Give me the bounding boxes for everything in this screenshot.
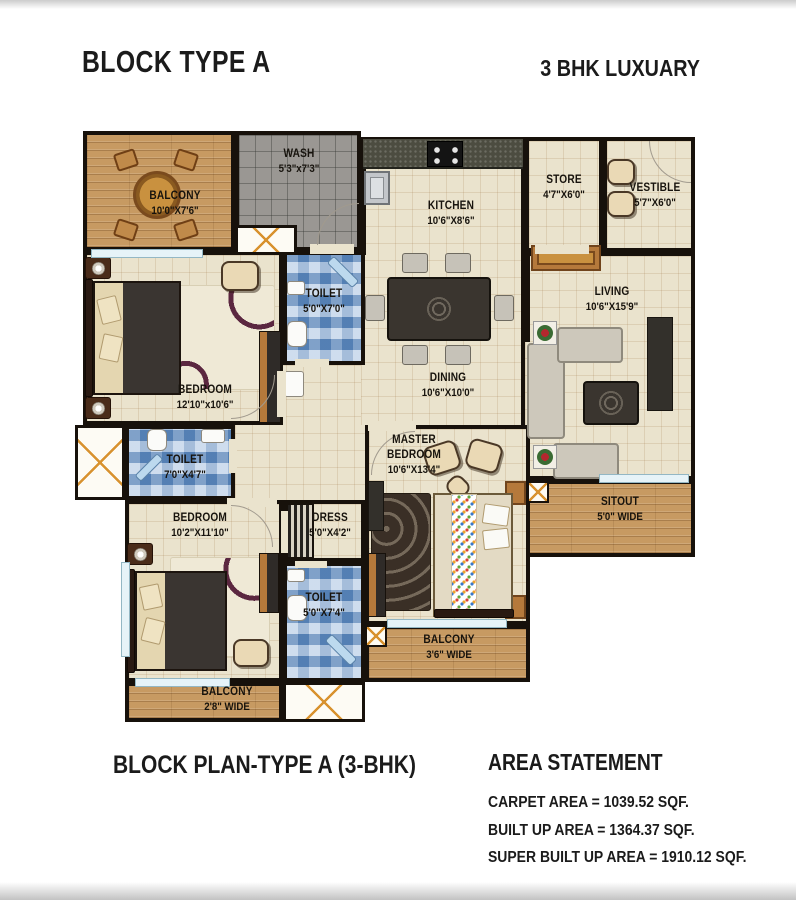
dining-table-icon [387, 277, 491, 341]
pillow [482, 503, 511, 526]
page-edge-shade-bottom [0, 882, 796, 900]
chair-icon [221, 261, 259, 291]
floor-plan: BALCONY 10'0"X7'6" WASH 5'3"x7'3" KITCHE… [75, 125, 700, 725]
wc-icon [147, 429, 167, 451]
builtup-area-line: BUILT UP AREA = 1364.37 SQF. [488, 817, 758, 845]
page-subtitle: 3 BHK LUXUARY [528, 55, 700, 82]
dresser-icon [368, 481, 384, 531]
tv-unit-icon [647, 317, 673, 411]
wall-living-left [523, 252, 530, 342]
door-opening [277, 371, 286, 417]
room-label-wash: WASH 5'3"x7'3" [257, 147, 341, 176]
chair-icon [233, 639, 269, 667]
room-label-dining: DINING 10'6"X10'0" [400, 371, 497, 400]
stove-icon [427, 141, 463, 167]
page-title: BLOCK TYPE A [82, 44, 271, 80]
carpet-area-line: CARPET AREA = 1039.52 SQF. [488, 789, 758, 817]
super-builtup-area-line: SUPER BUILT UP AREA = 1910.12 SQF. [488, 844, 758, 872]
dining-chair-icon [494, 295, 514, 321]
window [91, 249, 203, 258]
wardrobe-icon [259, 553, 279, 613]
area-statement-title: AREA STATEMENT [488, 749, 663, 776]
page-edge-shade-top [0, 0, 796, 9]
room-label-toilet-3: TOILET 5'0"X7'4" [288, 591, 360, 620]
bed-runner [451, 494, 477, 618]
nightstand-lamp-icon [127, 543, 153, 565]
duct-x-icon [235, 225, 297, 255]
washbasin-icon [201, 429, 225, 443]
sofa-icon [557, 327, 623, 363]
room-label-store: STORE 4'7"X6'0" [531, 173, 596, 202]
area-statement-lines: CARPET AREA = 1039.52 SQF. BUILT UP AREA… [488, 789, 788, 872]
room-label-balcony-28: BALCONY 2'8" WIDE [174, 685, 280, 714]
room-label-balcony-36: BALCONY 3'6" WIDE [394, 633, 503, 662]
duct-x-icon [527, 481, 549, 503]
dining-chair-icon [402, 253, 428, 273]
room-label-sitout: SITOUT 5'0" WIDE [576, 495, 664, 524]
wc-icon [287, 321, 307, 347]
door-opening [281, 511, 288, 553]
coffee-table-icon [583, 381, 639, 425]
dining-chair-icon [445, 253, 471, 273]
bed-headboard [434, 609, 514, 618]
pillow [99, 333, 124, 363]
room-label-vestible: VESTIBLE 5'7"X6'0" [616, 181, 693, 210]
dining-chair-icon [365, 295, 385, 321]
wardrobe-icon [368, 553, 386, 617]
room-label-living: LIVING 10'6"X15'9" [568, 285, 656, 314]
pillow [140, 617, 165, 645]
pillow [96, 295, 122, 325]
dining-chair-icon [402, 345, 428, 365]
washbasin-icon [284, 371, 304, 397]
room-label-bedroom-1: BEDROOM 12'10"x10'6" [152, 383, 258, 412]
plan-footer-title: BLOCK PLAN-TYPE A (3-BHK) [113, 751, 416, 780]
room-label-balcony-top-left: BALCONY 10'0"X7'6" [126, 189, 225, 218]
plant-icon [533, 445, 557, 469]
pillow [482, 528, 510, 551]
room-label-toilet-2: TOILET 7'0"X4'7" [141, 453, 229, 482]
room-label-kitchen: KITCHEN 10'6"X8'6" [407, 199, 495, 228]
door-opening [368, 421, 416, 431]
room-label-toilet-1: TOILET 5'0"X7'0" [286, 287, 362, 316]
door-opening [295, 561, 327, 568]
nightstand-lamp-icon [85, 397, 111, 419]
kitchen-sink-icon [364, 171, 390, 205]
bed-icon [135, 571, 227, 671]
door-opening [535, 245, 589, 254]
dining-chair-icon [445, 345, 471, 365]
bed-icon [93, 281, 181, 395]
door-opening [295, 359, 329, 367]
door-opening [310, 244, 354, 254]
bed-icon [433, 493, 513, 617]
door-opening [229, 439, 237, 473]
pillow [139, 583, 164, 611]
duct-x-icon [365, 625, 387, 647]
window [387, 619, 507, 628]
washbasin-icon [287, 569, 305, 582]
plant-icon [533, 321, 557, 345]
room-label-master-bedroom: MASTER BEDROOM 10'6"X13'4" [376, 433, 452, 477]
window [599, 474, 689, 483]
room-label-bedroom-2: BEDROOM 10'2"X11'10" [145, 511, 254, 540]
shaft-x-icon [75, 425, 125, 500]
room-label-dress: DRESS 5'0"X4'2" [299, 511, 361, 540]
bed-headboard [85, 279, 93, 397]
nightstand-lamp-icon [85, 257, 111, 279]
shaft-bottom-x-icon [283, 682, 365, 722]
window [121, 562, 130, 657]
